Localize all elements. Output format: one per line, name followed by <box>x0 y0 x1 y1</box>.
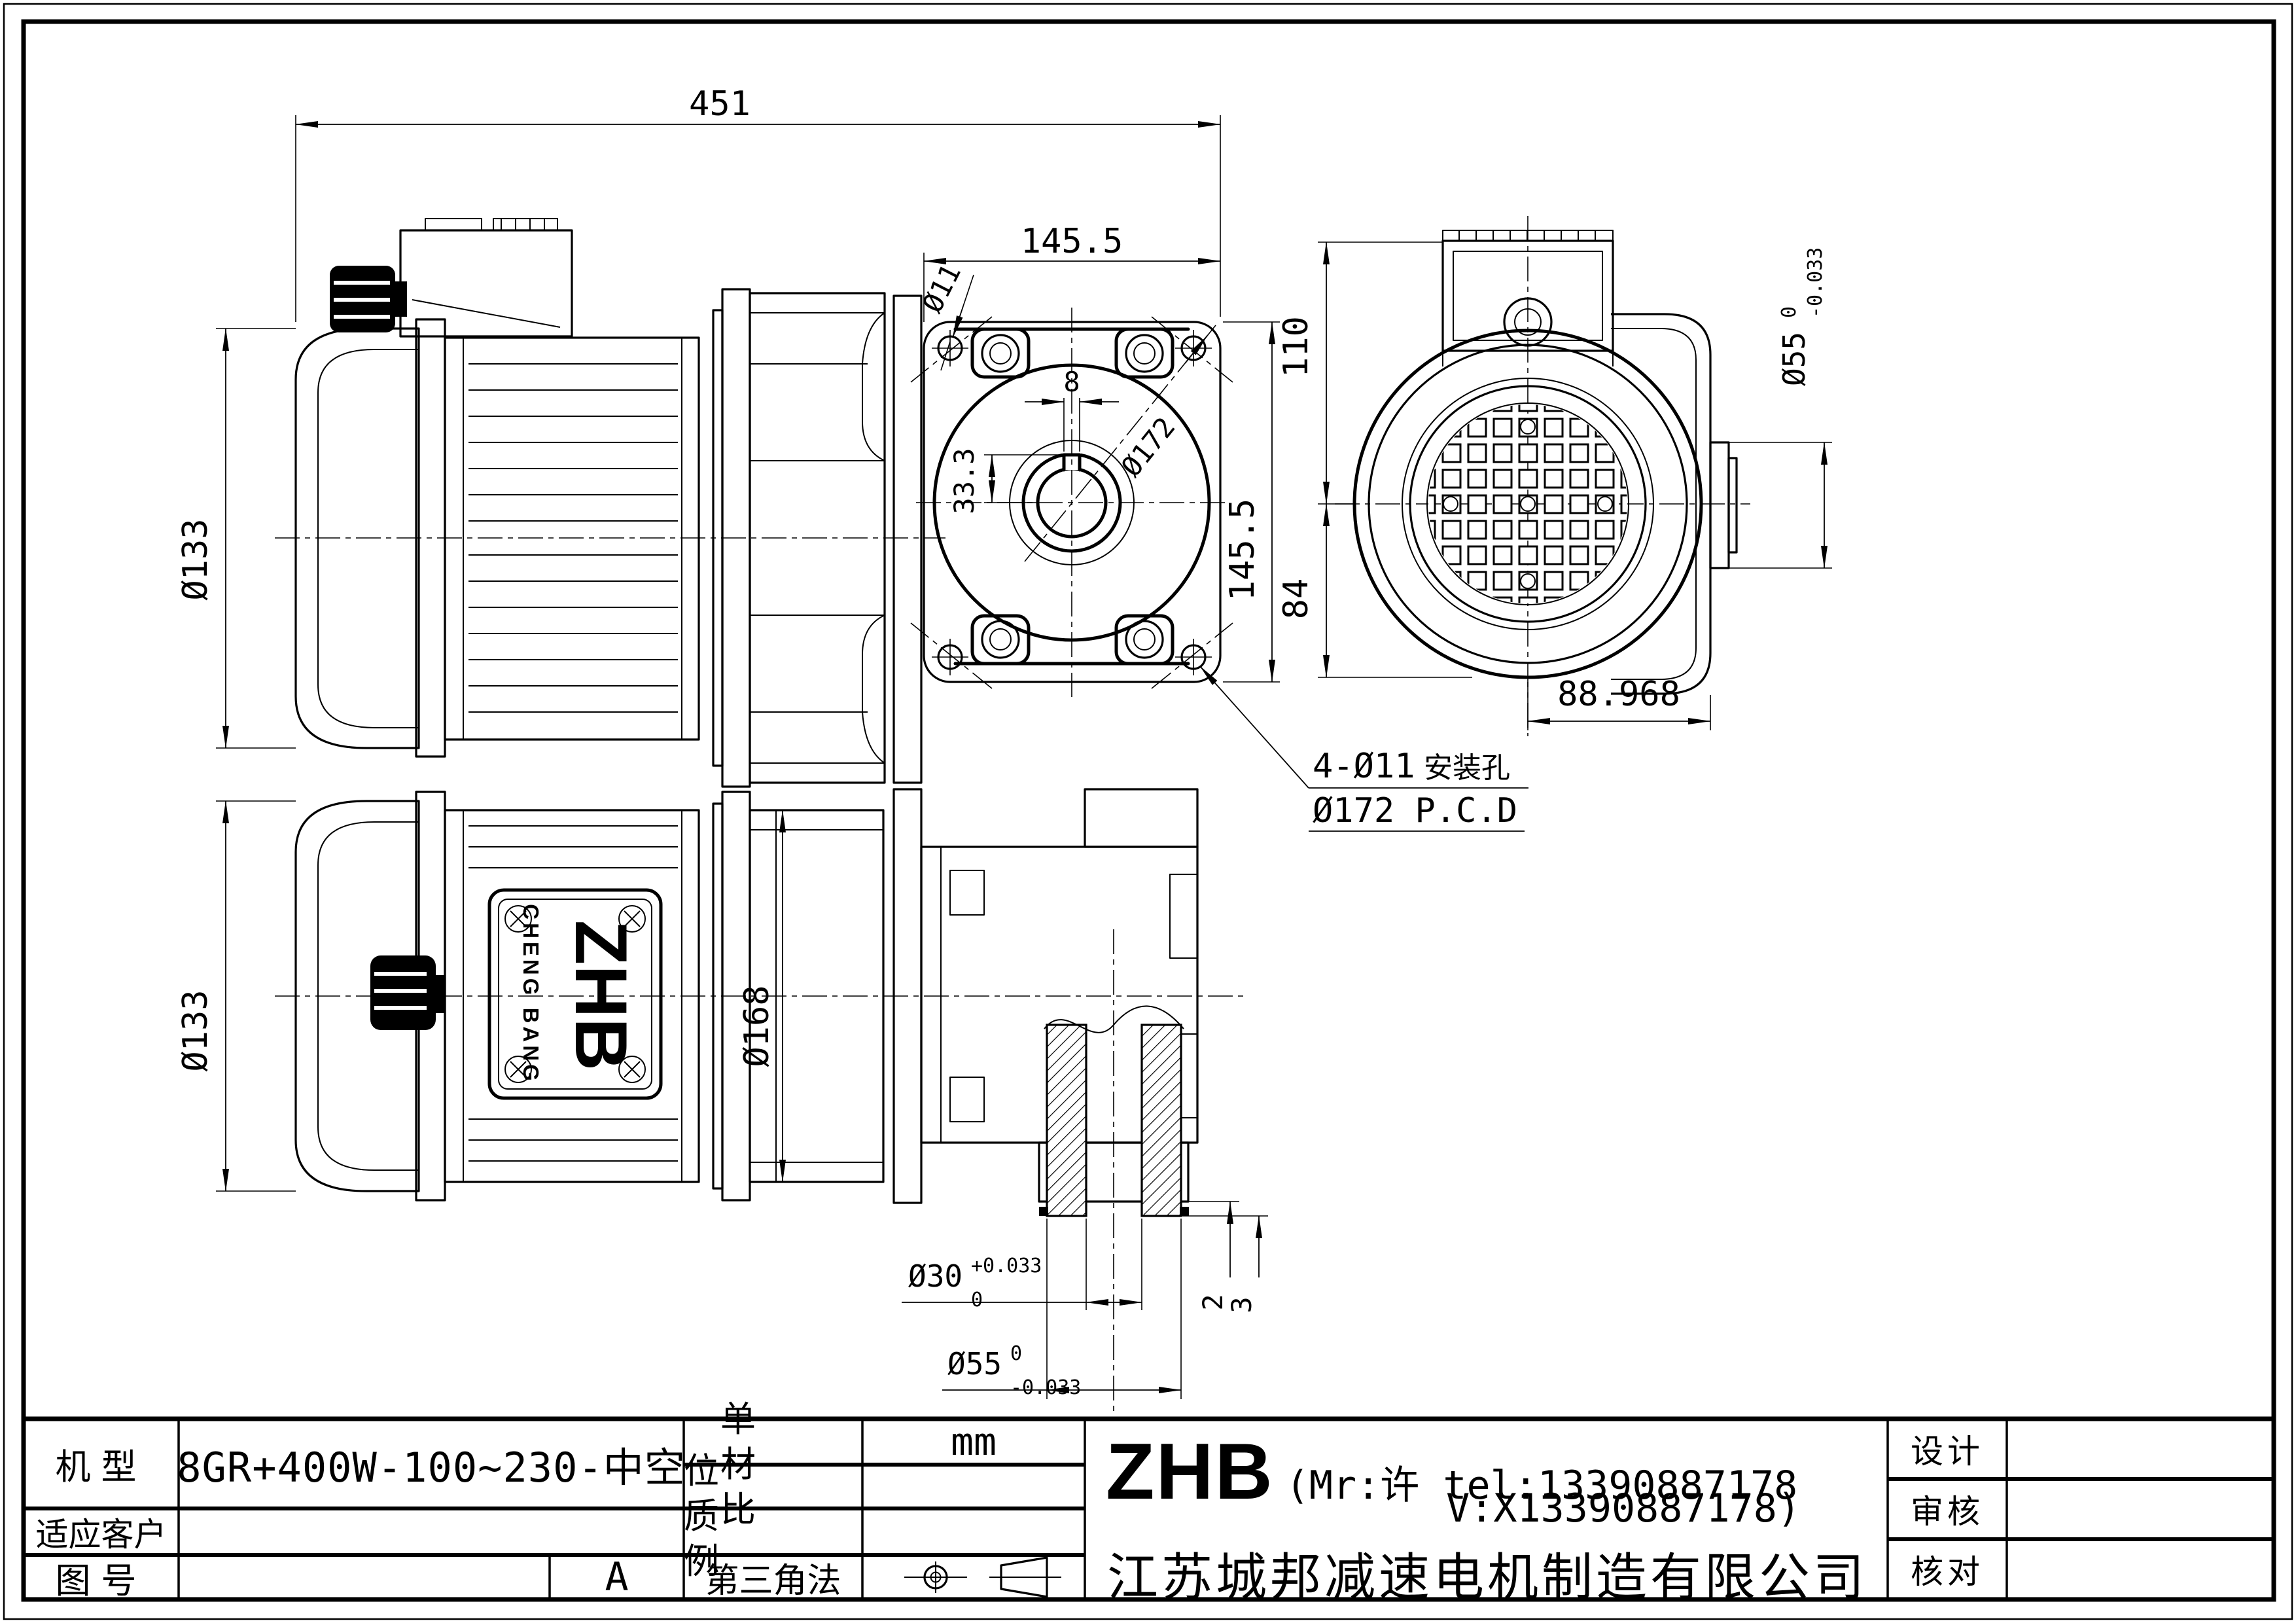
dim-33-3: 33.3 <box>948 448 980 514</box>
checker-value <box>2007 1539 2274 1599</box>
dim-3: 3 <box>1226 1296 1258 1313</box>
top-view: CHENG BANG ZHB <box>275 789 1243 1414</box>
dim-overall-length: 451 <box>296 84 1220 322</box>
dim-hollow-bore: Ø30 +0.033 0 <box>902 1219 1142 1311</box>
fan-view <box>1335 216 1750 736</box>
dim-168: Ø168 <box>737 985 777 1067</box>
dim-55-right-sup: 0 <box>1778 306 1801 318</box>
dim-shaft-55: Ø55 0 -0.033 <box>1729 247 1832 568</box>
customer-value <box>179 1508 684 1555</box>
dim-133-bottom: Ø133 <box>176 990 215 1071</box>
mounting-note: 4-Ø11 安装孔 Ø172 P.C.D <box>1200 666 1528 831</box>
dim-172: Ø172 <box>1115 411 1182 482</box>
dim-110: 110 <box>1277 316 1316 378</box>
dim-flange-height: 145.5 <box>1223 322 1280 682</box>
scale-label: 比 例 <box>684 1508 862 1555</box>
customer-label: 适应客户 <box>24 1508 179 1555</box>
designer-label: 设计 <box>1888 1419 2007 1479</box>
dim-bracket-width: 88.968 <box>1528 675 1710 730</box>
dim-145-5-top: 145.5 <box>1021 222 1123 261</box>
material-value <box>862 1465 1085 1508</box>
dim-451: 451 <box>689 84 751 124</box>
dim-30-sub: 0 <box>971 1289 983 1311</box>
company-contact-2: V:X13390887178) <box>1106 1486 1801 1531</box>
dim-step-2: 2 <box>1188 1202 1239 1311</box>
dim-88-968: 88.968 <box>1557 675 1680 714</box>
dim-step-3: 3 <box>1182 1216 1268 1313</box>
model-label: 机型 <box>24 1419 179 1508</box>
dim-133-top: Ø133 <box>176 518 215 600</box>
checker-label: 核对 <box>1888 1539 2007 1599</box>
drawing-sheet: 451 Ø133 <box>0 0 2296 1623</box>
reviewer-value <box>2007 1479 2274 1539</box>
drawing-no-label: 图号 <box>24 1555 179 1599</box>
dim-2: 2 <box>1197 1294 1229 1310</box>
note-pcd: Ø172 P.C.D <box>1313 791 1517 830</box>
reviewer-label: 审核 <box>1888 1479 2007 1539</box>
dim-flange-width: 145.5 <box>924 222 1220 322</box>
dim-55-right-main: Ø55 <box>1776 332 1812 386</box>
model-value: 8GR+400W-100~230-中空 <box>179 1419 684 1508</box>
nameplate: CHENG BANG ZHB <box>489 890 661 1098</box>
dim-55-bottom-sup: 0 <box>1010 1342 1022 1365</box>
dim-145-5-right: 145.5 <box>1223 499 1262 601</box>
company-name: 江苏城邦减速电机制造有限公司 <box>1091 1537 1883 1610</box>
nameplate-maker: CHENG BANG <box>519 904 543 1084</box>
designer-value <box>2007 1419 2274 1479</box>
dim-55-right-sub: -0.033 <box>1804 247 1827 318</box>
projection-symbol-icon <box>904 1558 1061 1597</box>
note-4xd11: 4-Ø11 <box>1313 747 1415 786</box>
dim-8: 8 <box>1063 366 1080 398</box>
dim-30-sup: +0.033 <box>971 1255 1042 1277</box>
drawing-no-value <box>179 1555 550 1599</box>
dim-55-bottom-sub: -0.033 <box>1010 1376 1081 1399</box>
cable-gland-top-icon <box>370 955 445 1030</box>
scale-value <box>862 1508 1085 1555</box>
dim-30-main: Ø30 <box>908 1258 963 1294</box>
side-view <box>275 219 945 787</box>
cable-gland-icon <box>330 266 407 332</box>
nameplate-brand: ZHB <box>560 920 642 1071</box>
note-mounting-holes-label: 安装孔 <box>1424 752 1510 784</box>
sheet-border <box>4 4 2292 1619</box>
unit-value: mm <box>862 1419 1085 1465</box>
dim-55-bottom-main: Ø55 <box>947 1346 1002 1382</box>
drawing-canvas: 451 Ø133 <box>0 0 2296 1623</box>
vent-grid <box>1423 399 1633 609</box>
projection-label: 第三角法 <box>684 1555 862 1599</box>
revision: A <box>550 1555 684 1599</box>
dim-84: 84 <box>1277 579 1316 620</box>
